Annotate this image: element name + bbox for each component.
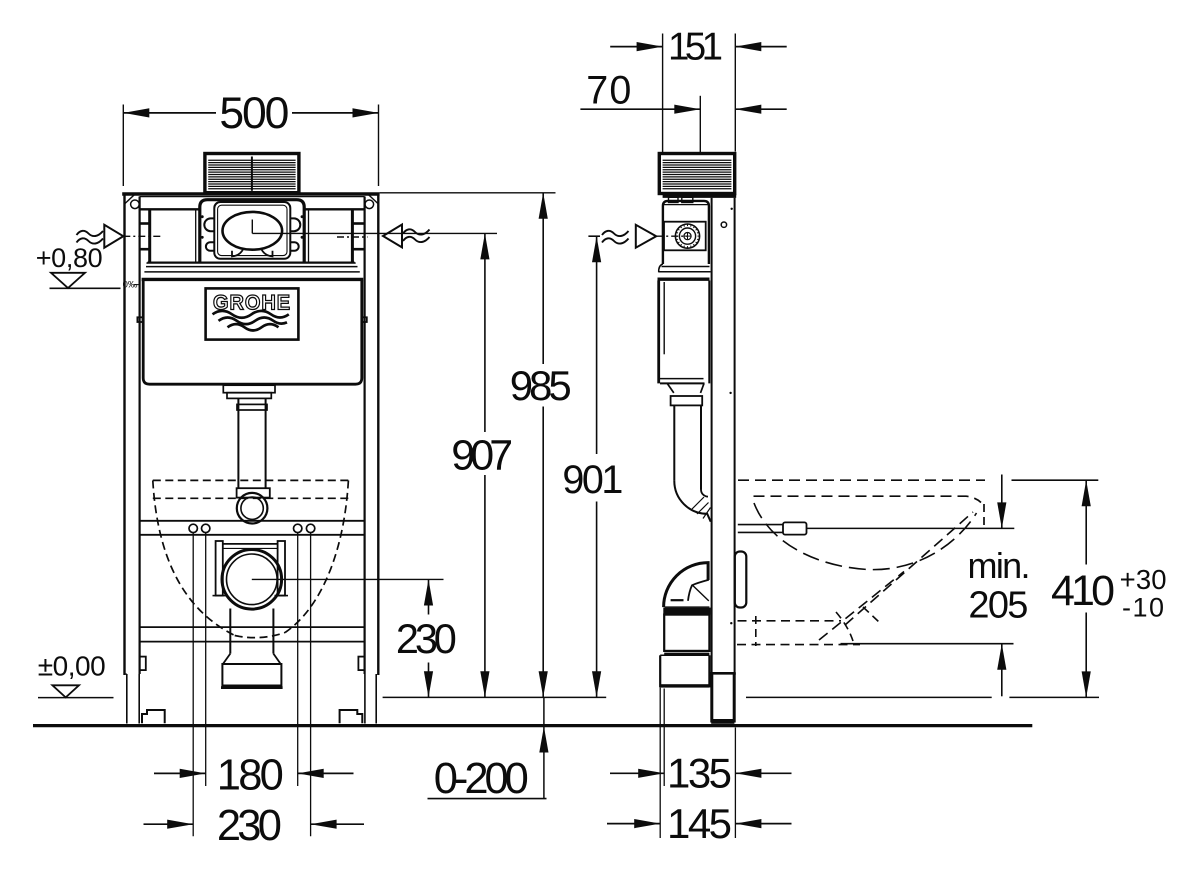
svg-text:230: 230 xyxy=(396,615,457,662)
svg-text:145: 145 xyxy=(667,800,732,847)
svg-text:151: 151 xyxy=(668,26,723,69)
svg-text:907: 907 xyxy=(451,432,513,480)
svg-text:70: 70 xyxy=(586,69,631,113)
svg-text:985: 985 xyxy=(510,362,572,409)
svg-text:230: 230 xyxy=(217,802,282,850)
svg-text:±0,00: ±0,00 xyxy=(38,651,106,682)
svg-text:901: 901 xyxy=(562,458,623,502)
svg-text:180: 180 xyxy=(217,751,284,799)
svg-text:+0,80: +0,80 xyxy=(36,243,103,273)
svg-text:+30: +30 xyxy=(1120,564,1167,595)
svg-text:410: 410 xyxy=(1051,567,1115,615)
svg-text:205: 205 xyxy=(968,585,1028,627)
svg-text:135: 135 xyxy=(667,750,732,797)
svg-text:-10: -10 xyxy=(1122,592,1164,622)
svg-text:0-200: 0-200 xyxy=(434,755,529,803)
svg-text:500: 500 xyxy=(219,89,289,138)
svg-text:min.: min. xyxy=(968,545,1031,586)
